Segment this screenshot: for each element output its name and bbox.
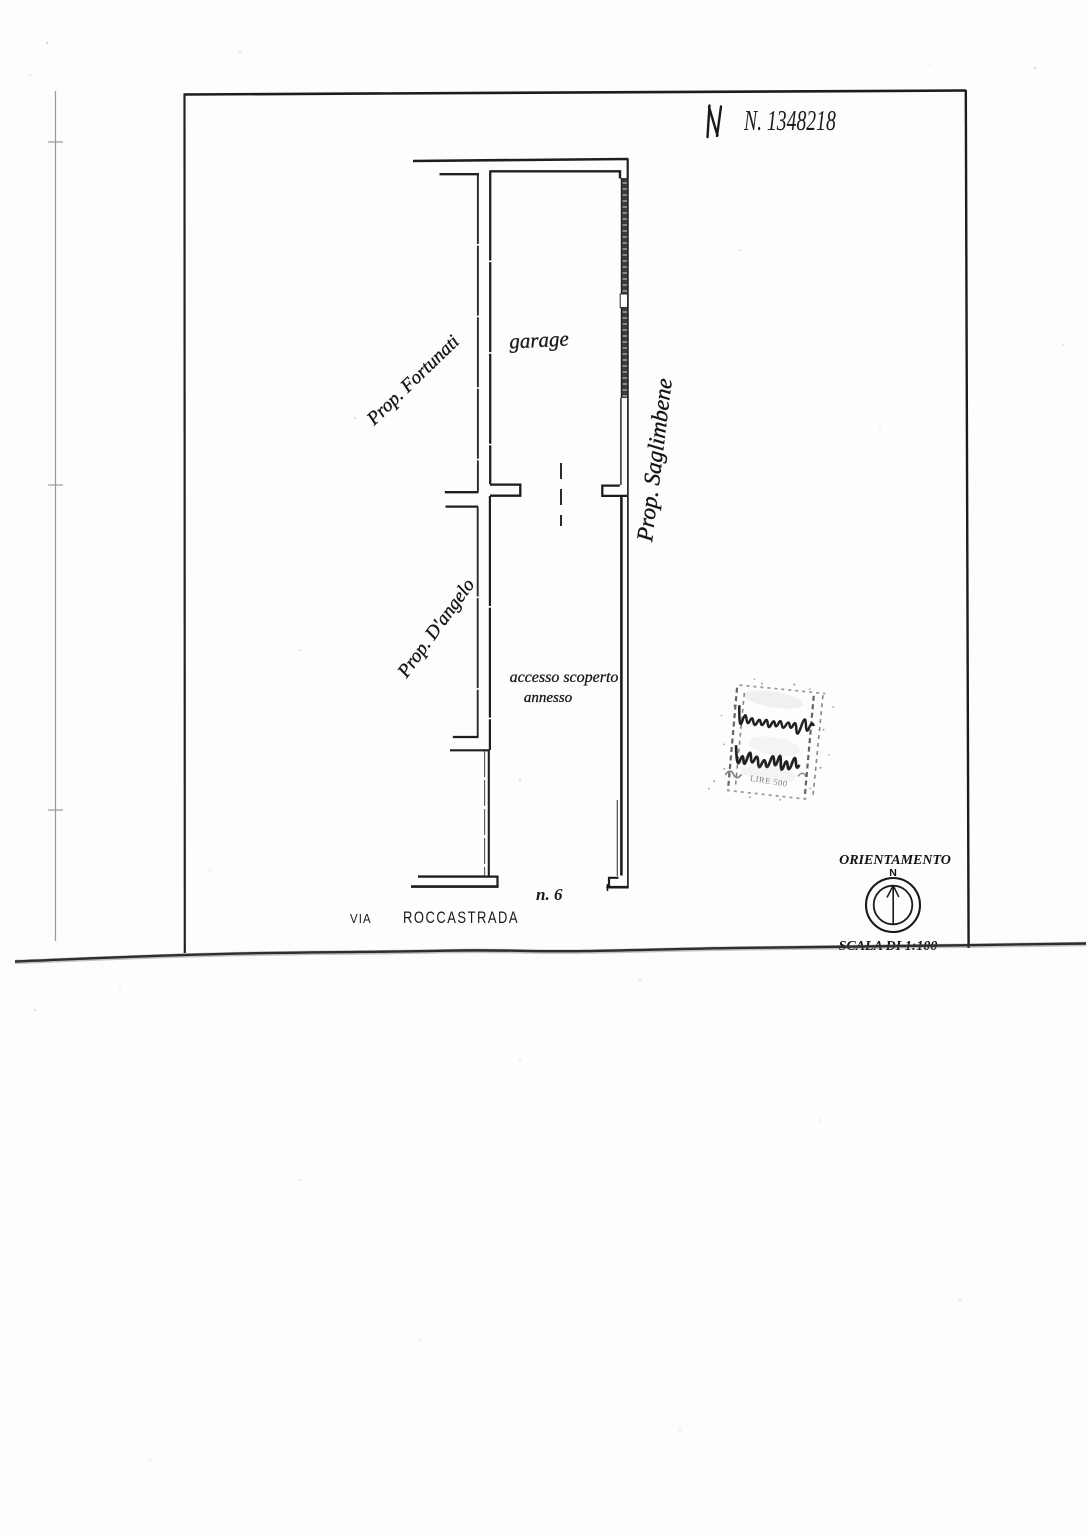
svg-text:VIA: VIA	[350, 911, 372, 926]
svg-text:annesso: annesso	[524, 690, 573, 706]
svg-text:ROCCASTRADA: ROCCASTRADA	[403, 910, 519, 928]
svg-text:Prop. Saglimbene: Prop. Saglimbene	[632, 377, 677, 544]
svg-text:N. 1348218: N. 1348218	[743, 105, 836, 137]
svg-text:accesso scoperto: accesso scoperto	[510, 669, 619, 686]
svg-text:garage: garage	[509, 326, 570, 353]
svg-text:n. 6: n. 6	[536, 885, 563, 904]
svg-text:ORIENTAMENTO: ORIENTAMENTO	[839, 853, 951, 868]
svg-text:Prop. Fortunati: Prop. Fortunati	[362, 331, 463, 430]
svg-text:Prop. D'angelo: Prop. D'angelo	[393, 575, 479, 682]
